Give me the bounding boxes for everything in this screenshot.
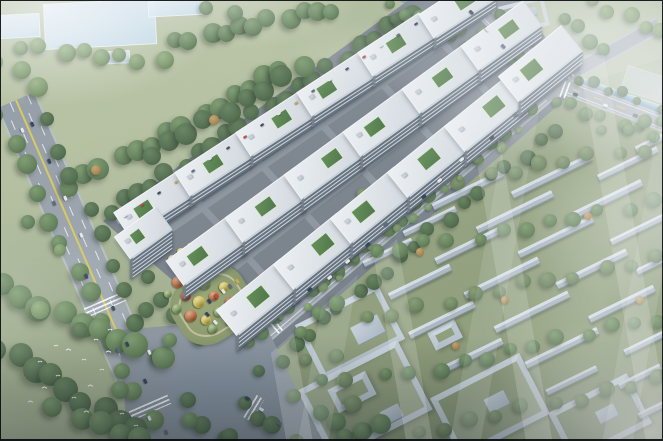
haze-patch (120, 0, 360, 50)
haze-patch (480, 140, 663, 441)
haze-patch (0, 0, 230, 108)
aerial-rendering-industrial-park (0, 0, 663, 441)
haze-patch (513, 90, 663, 310)
haze-patch (380, 50, 620, 190)
haze-layer (0, 0, 663, 441)
haze-patch (370, 0, 663, 160)
haze-patch (533, 0, 663, 190)
haze-patch (0, 215, 130, 385)
haze-patch (280, 20, 440, 100)
haze-patch (458, 312, 663, 441)
